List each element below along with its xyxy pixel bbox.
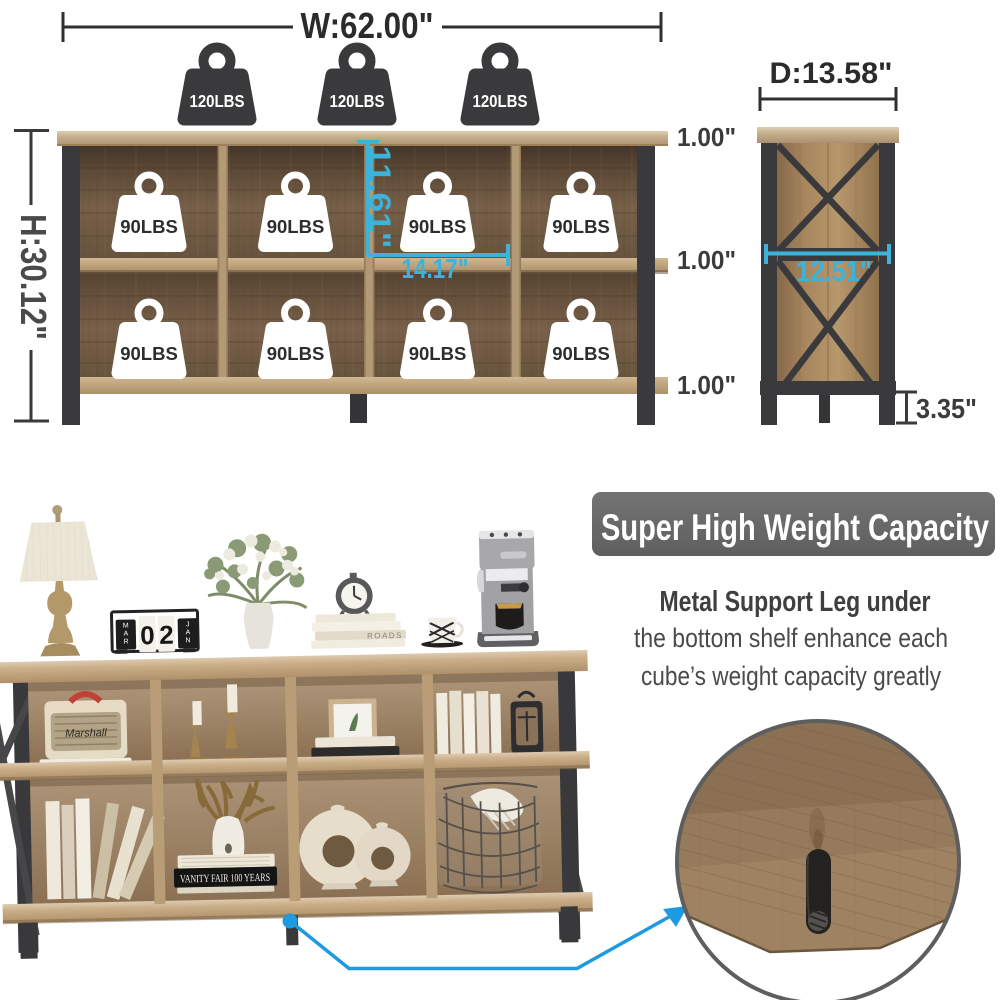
svg-text:90LBS: 90LBS — [120, 343, 178, 364]
svg-text:M: M — [123, 623, 129, 630]
svg-text:D:13.58": D:13.58" — [770, 57, 893, 90]
svg-text:90LBS: 90LBS — [552, 216, 610, 237]
svg-text:Marshall: Marshall — [65, 727, 107, 740]
svg-text:J: J — [186, 621, 190, 628]
svg-text:90LBS: 90LBS — [409, 343, 467, 364]
svg-text:120LBS: 120LBS — [190, 91, 245, 111]
svg-text:120LBS: 120LBS — [330, 91, 385, 111]
svg-text:12.51": 12.51" — [796, 256, 872, 288]
svg-text:90LBS: 90LBS — [552, 343, 610, 364]
svg-text:1.00": 1.00" — [677, 122, 736, 152]
svg-text:120LBS: 120LBS — [473, 91, 528, 111]
svg-text:Metal Support Leg under: Metal Support Leg under — [660, 586, 931, 618]
svg-text:N: N — [185, 637, 190, 644]
svg-text:Super High Weight Capacity: Super High Weight Capacity — [601, 507, 989, 548]
svg-text:11.61": 11.61" — [363, 146, 396, 249]
svg-text:90LBS: 90LBS — [267, 343, 325, 364]
svg-text:14.17": 14.17" — [402, 253, 469, 284]
svg-text:90LBS: 90LBS — [120, 216, 178, 237]
svg-text:2: 2 — [159, 620, 174, 650]
svg-text:A: A — [123, 631, 128, 638]
svg-text:0: 0 — [140, 620, 155, 650]
svg-text:1.00": 1.00" — [677, 370, 736, 400]
svg-text:H:30.12": H:30.12" — [13, 214, 54, 340]
svg-text:the bottom shelf enhance each: the bottom shelf enhance each — [634, 623, 948, 653]
svg-text:A: A — [185, 629, 190, 636]
svg-text:3.35": 3.35" — [916, 393, 977, 424]
svg-text:90LBS: 90LBS — [409, 216, 467, 237]
svg-text:VANITY FAIR 100 YEARS: VANITY FAIR 100 YEARS — [180, 872, 270, 886]
svg-text:cube’s weight capacity greatly: cube’s weight capacity greatly — [641, 661, 941, 691]
svg-text:90LBS: 90LBS — [267, 216, 325, 237]
svg-text:R: R — [123, 639, 128, 646]
svg-text:W:62.00": W:62.00" — [301, 5, 434, 46]
svg-text:1.00": 1.00" — [677, 245, 736, 275]
